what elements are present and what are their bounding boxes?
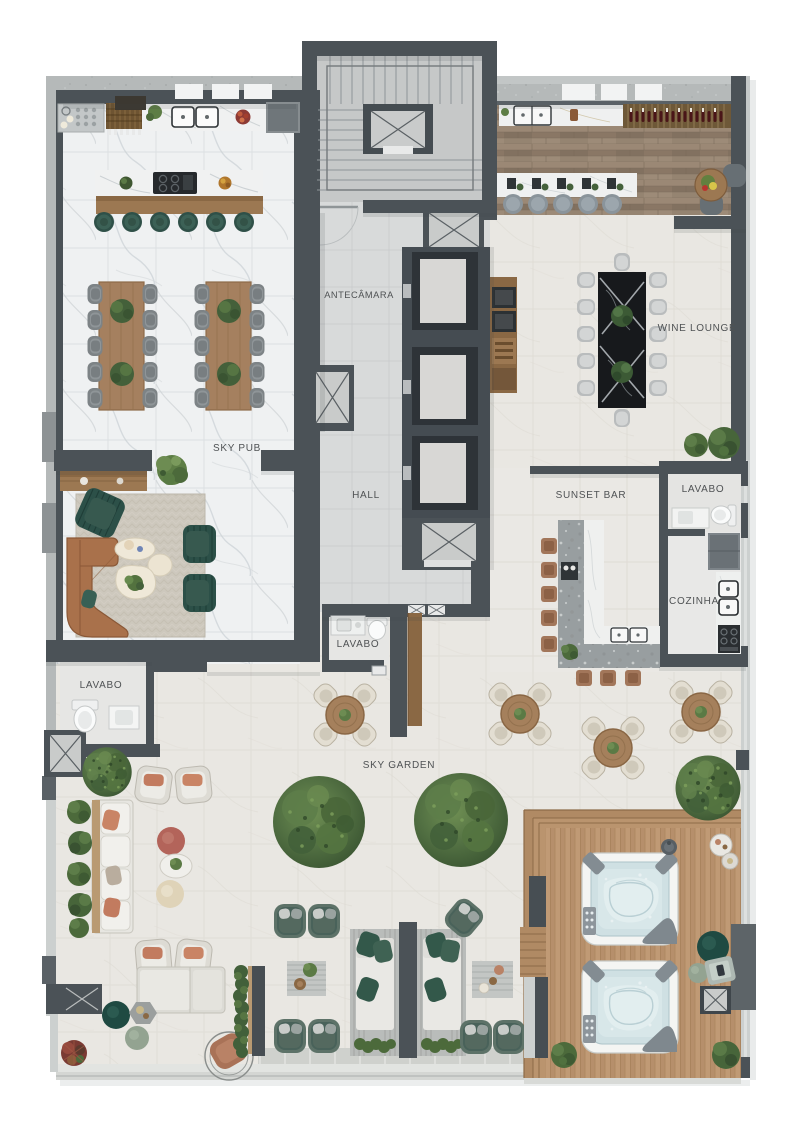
svg-text:COZINHA: COZINHA	[669, 596, 719, 607]
svg-text:SUNSET BAR: SUNSET BAR	[556, 490, 627, 501]
svg-text:LAVABO: LAVABO	[337, 639, 380, 650]
svg-text:SKY PUB: SKY PUB	[213, 443, 261, 454]
svg-text:LAVABO: LAVABO	[80, 680, 123, 691]
svg-text:SKY GARDEN: SKY GARDEN	[363, 760, 435, 771]
svg-text:HALL: HALL	[352, 490, 380, 501]
svg-text:WINE LOUNGE: WINE LOUNGE	[658, 323, 737, 334]
svg-text:ANTECÂMARA: ANTECÂMARA	[324, 290, 394, 300]
svg-text:LAVABO: LAVABO	[682, 484, 725, 495]
